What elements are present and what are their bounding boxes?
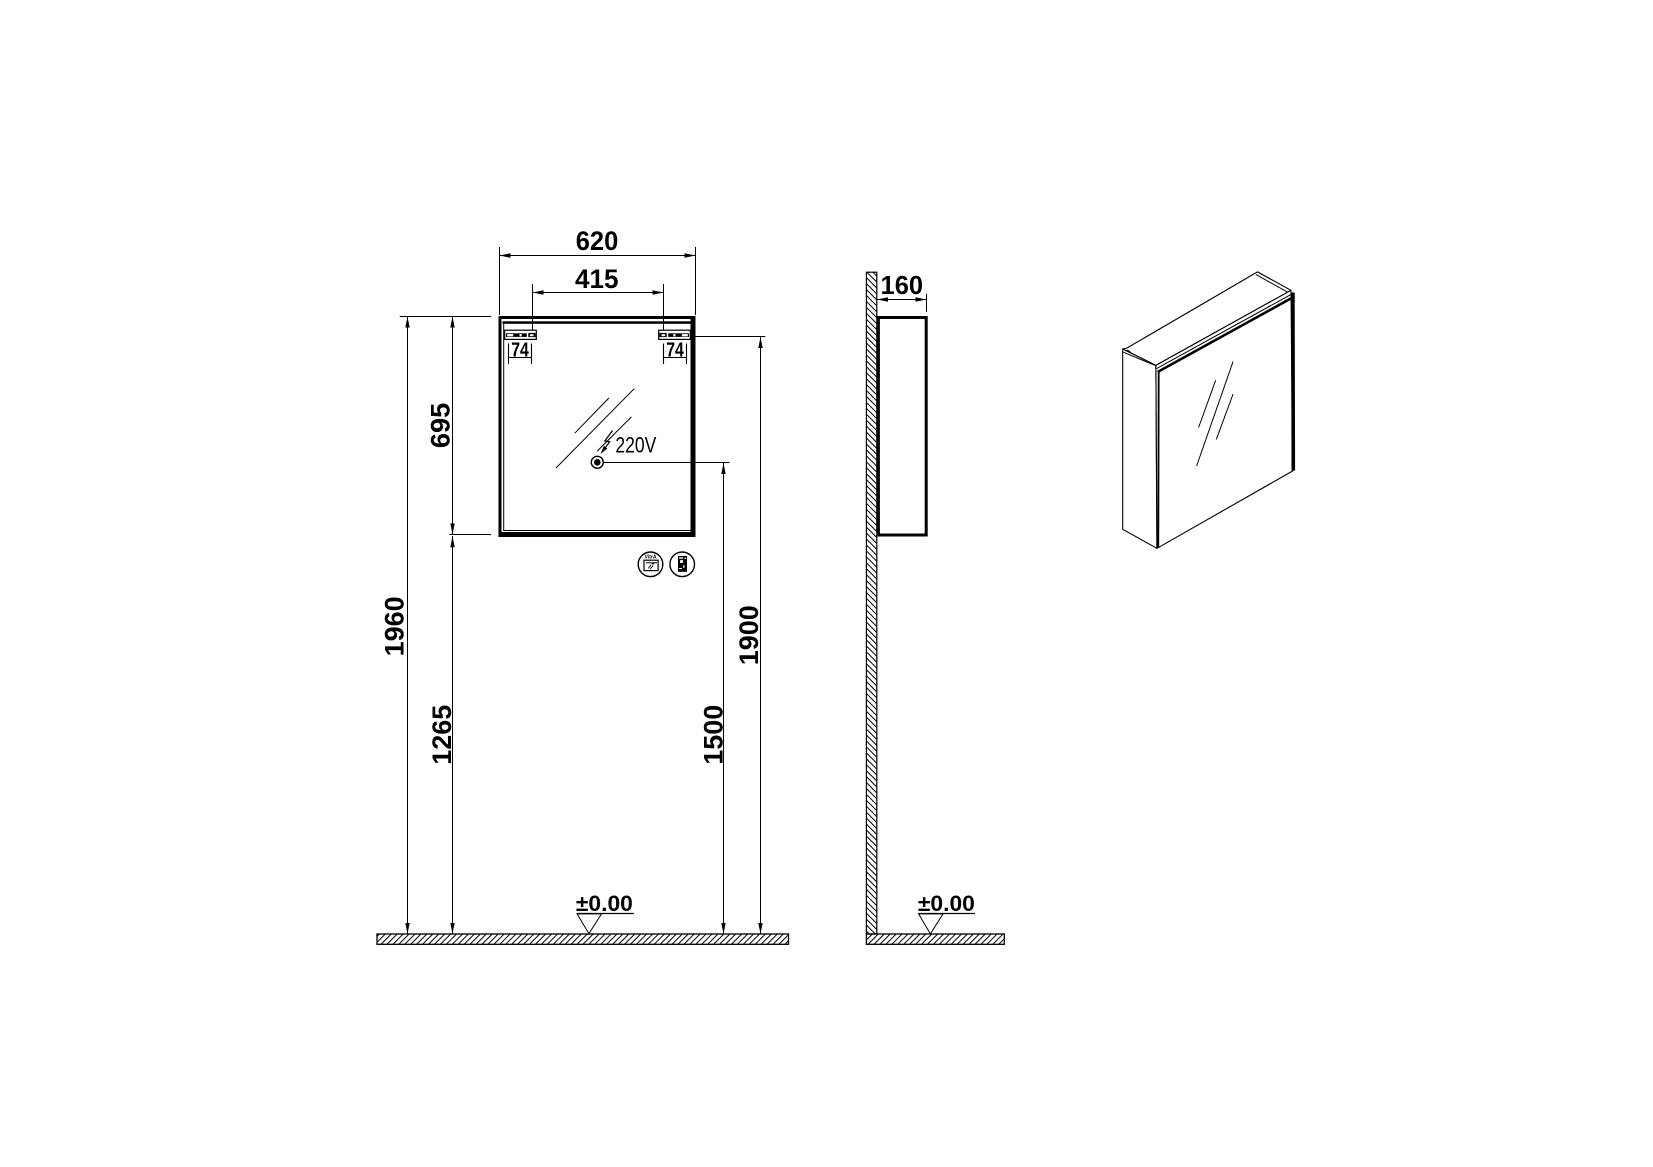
svg-text:160: 160 [881, 270, 924, 300]
svg-text:74: 74 [666, 339, 684, 362]
svg-text:1960: 1960 [379, 596, 409, 656]
svg-text:620: 620 [576, 226, 619, 256]
svg-text:1265: 1265 [427, 705, 457, 765]
svg-text:415: 415 [575, 264, 619, 294]
svg-text:±0.00: ±0.00 [576, 891, 633, 916]
svg-text:1500: 1500 [699, 705, 729, 765]
svg-text:74: 74 [511, 339, 529, 362]
svg-text:695: 695 [425, 403, 455, 449]
svg-text:220V: 220V [615, 433, 656, 458]
svg-text:±0.00: ±0.00 [918, 891, 975, 916]
svg-text:1900: 1900 [734, 605, 764, 665]
